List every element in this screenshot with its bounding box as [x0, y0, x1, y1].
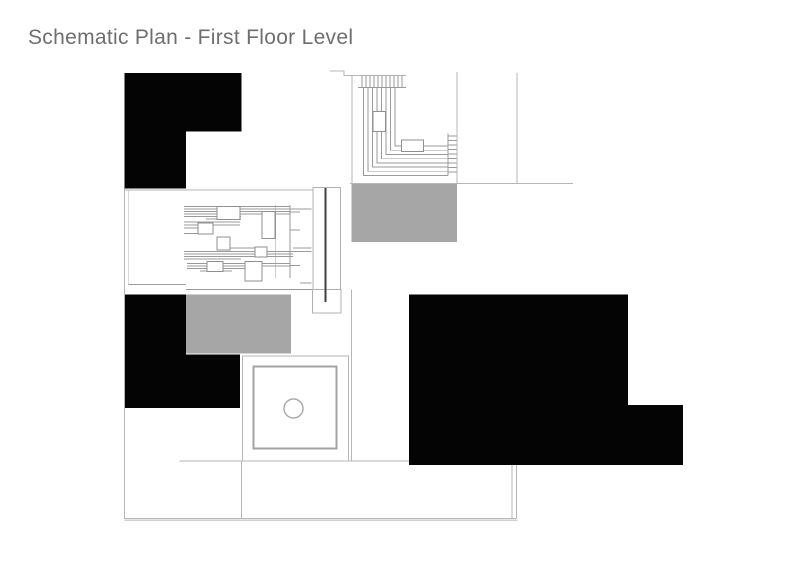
gray-zone-lower [186, 295, 291, 354]
wall-mass-top-left [125, 73, 242, 189]
wall-core-shaft [313, 188, 341, 290]
table-circle [284, 399, 303, 418]
millwork-box-3 [198, 223, 213, 234]
stair-top-step-line [330, 71, 406, 76]
millwork-box-4 [217, 237, 230, 250]
stair-landing-box-2 [402, 140, 424, 152]
wall-mass-right [409, 295, 683, 466]
millwork-box-1 [217, 207, 240, 220]
table-outer-square [243, 356, 349, 461]
millwork-box-2 [262, 212, 275, 239]
plan-drawing [0, 0, 793, 561]
wall-core [313, 188, 341, 314]
millwork-box-7 [245, 262, 262, 282]
table-fixture [243, 356, 349, 461]
stair-detail [330, 71, 457, 176]
table-inner-square [253, 367, 336, 449]
millwork-box-6 [207, 262, 223, 272]
millwork-box-5 [255, 247, 267, 257]
millwork-detail [184, 205, 312, 283]
gray-zone-upper [352, 184, 458, 242]
stair-tread-hatch-top [358, 76, 406, 88]
stair-tread-hatch-right [448, 134, 457, 176]
stair-landing-box-1 [373, 112, 386, 132]
schematic-plan-page: Schematic Plan - First Floor Level [0, 0, 793, 561]
